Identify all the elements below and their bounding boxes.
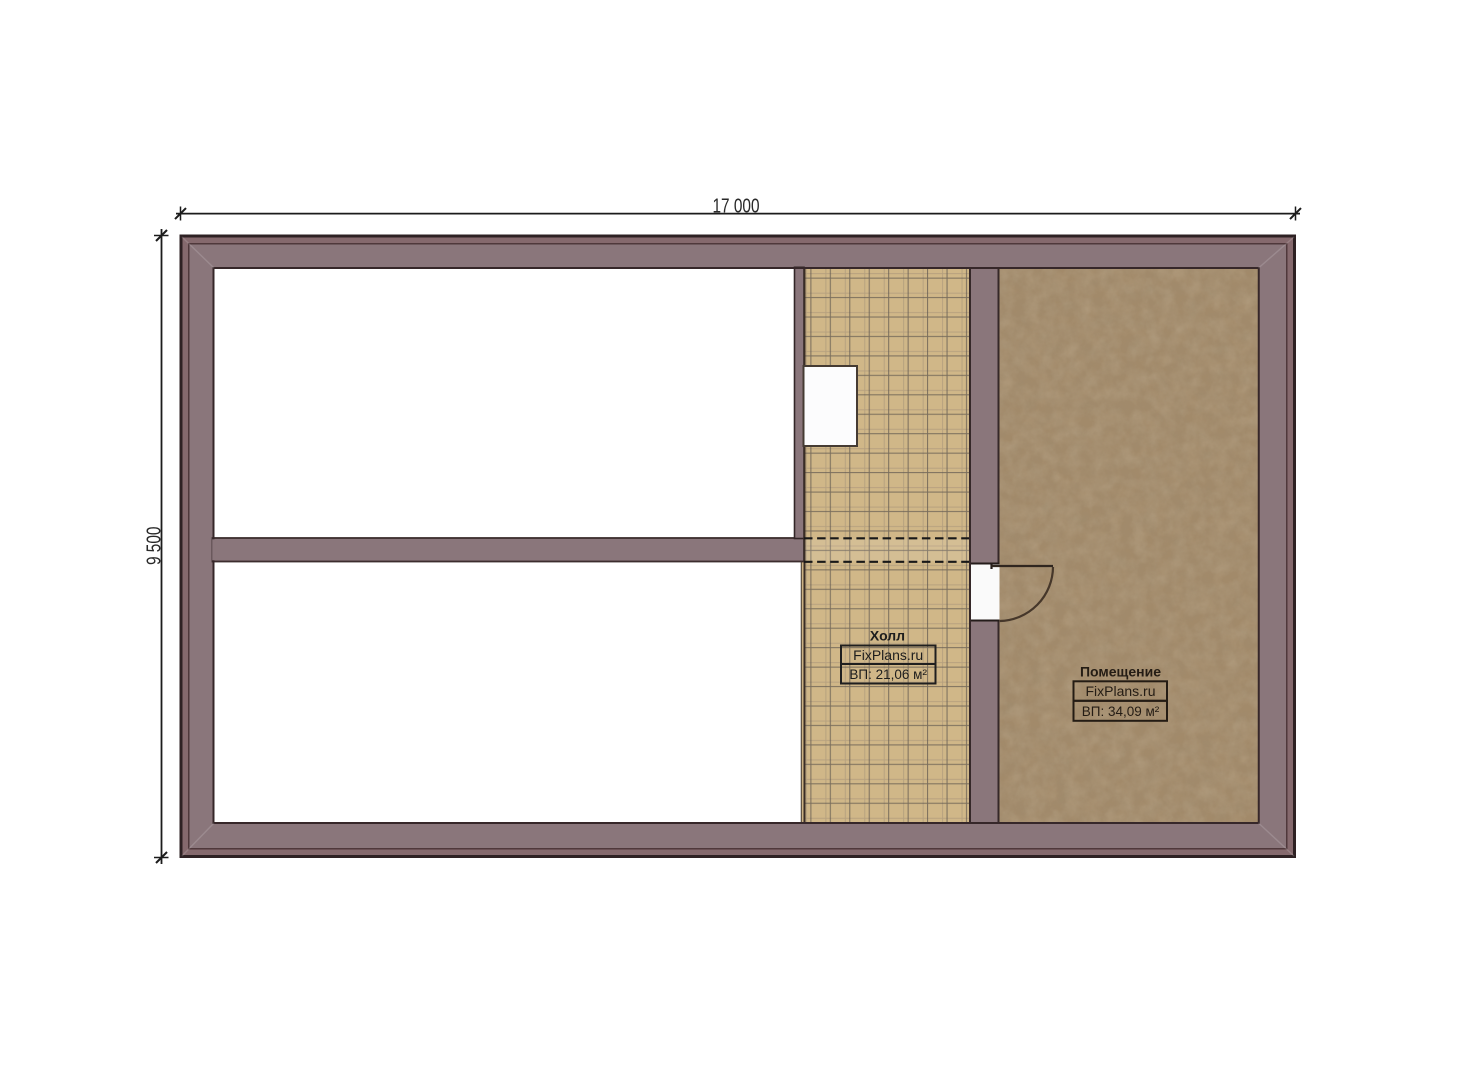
svg-text:ВП: 34,09 м²: ВП: 34,09 м²: [1082, 704, 1160, 719]
svg-text:FixPlans.ru: FixPlans.ru: [1085, 683, 1155, 699]
svg-text:ВП: 21,06 м²: ВП: 21,06 м²: [849, 667, 927, 682]
svg-text:Холл: Холл: [870, 628, 905, 644]
svg-text:17 000: 17 000: [713, 194, 760, 217]
svg-text:FixPlans.ru: FixPlans.ru: [853, 647, 923, 663]
svg-text:Помещение: Помещение: [1080, 663, 1161, 679]
svg-text:9 500: 9 500: [143, 527, 166, 566]
